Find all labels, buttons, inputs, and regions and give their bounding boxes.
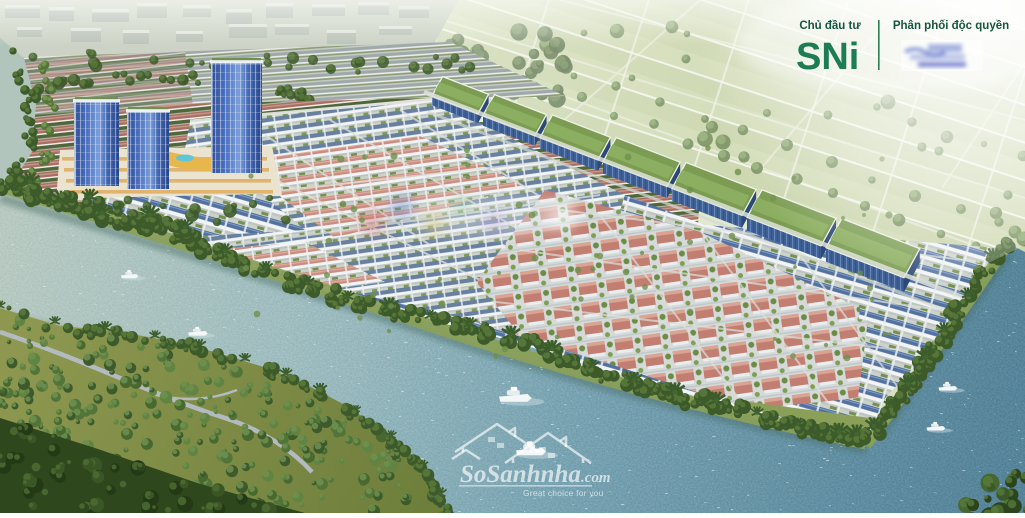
svg-text:Great choice for you: Great choice for you <box>523 488 604 498</box>
svg-text:Chủ đầu tư: Chủ đầu tư <box>799 20 861 32</box>
svg-text:Phân phối độc quyền: Phân phối độc quyền <box>893 20 1009 32</box>
svg-text:SNi: SNi <box>796 36 859 78</box>
